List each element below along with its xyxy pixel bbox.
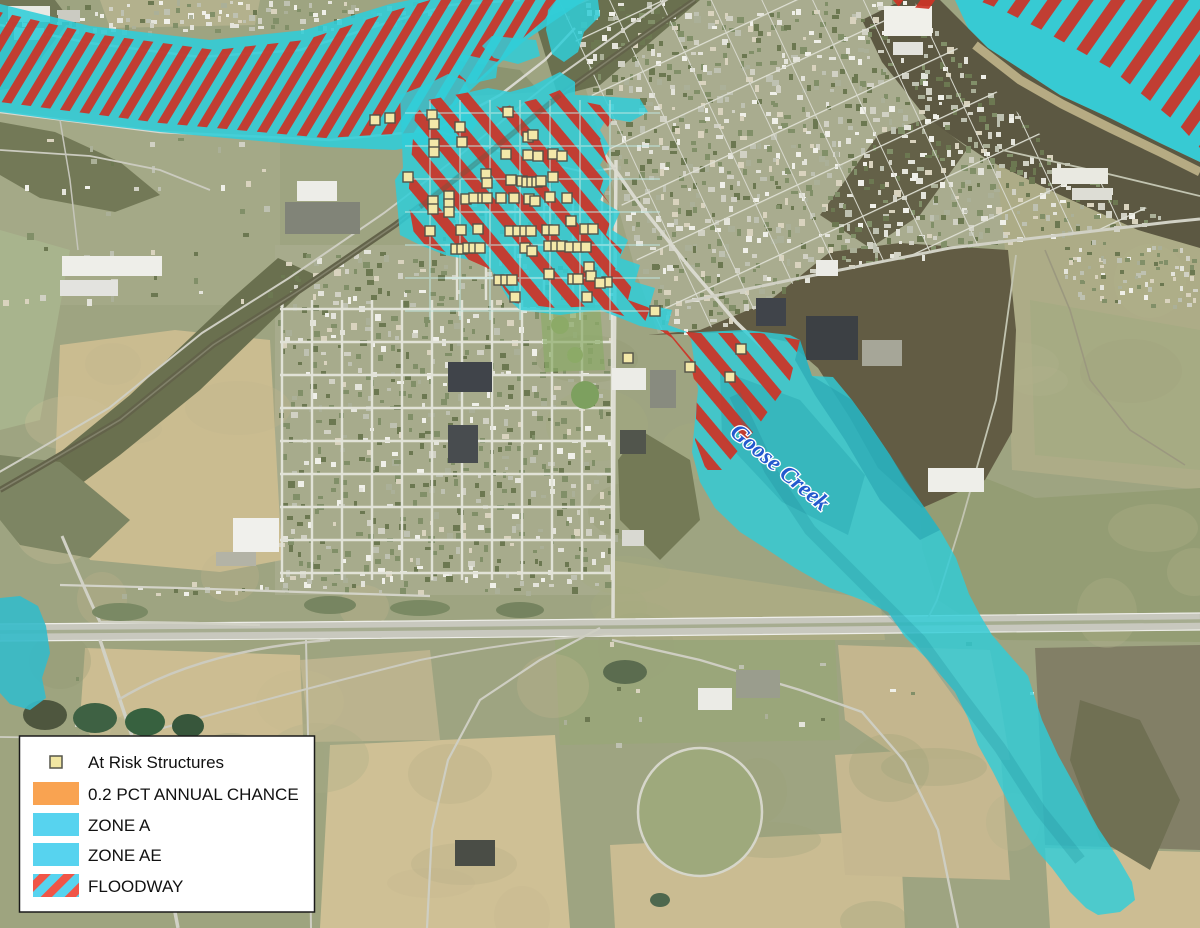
svg-text:ZONE A: ZONE A: [88, 816, 151, 835]
svg-text:FLOODWAY: FLOODWAY: [88, 877, 183, 896]
svg-text:At Risk Structures: At Risk Structures: [88, 753, 224, 772]
svg-text:ZONE AE: ZONE AE: [88, 846, 162, 865]
svg-text:0.2 PCT ANNUAL CHANCE: 0.2 PCT ANNUAL CHANCE: [88, 785, 299, 804]
